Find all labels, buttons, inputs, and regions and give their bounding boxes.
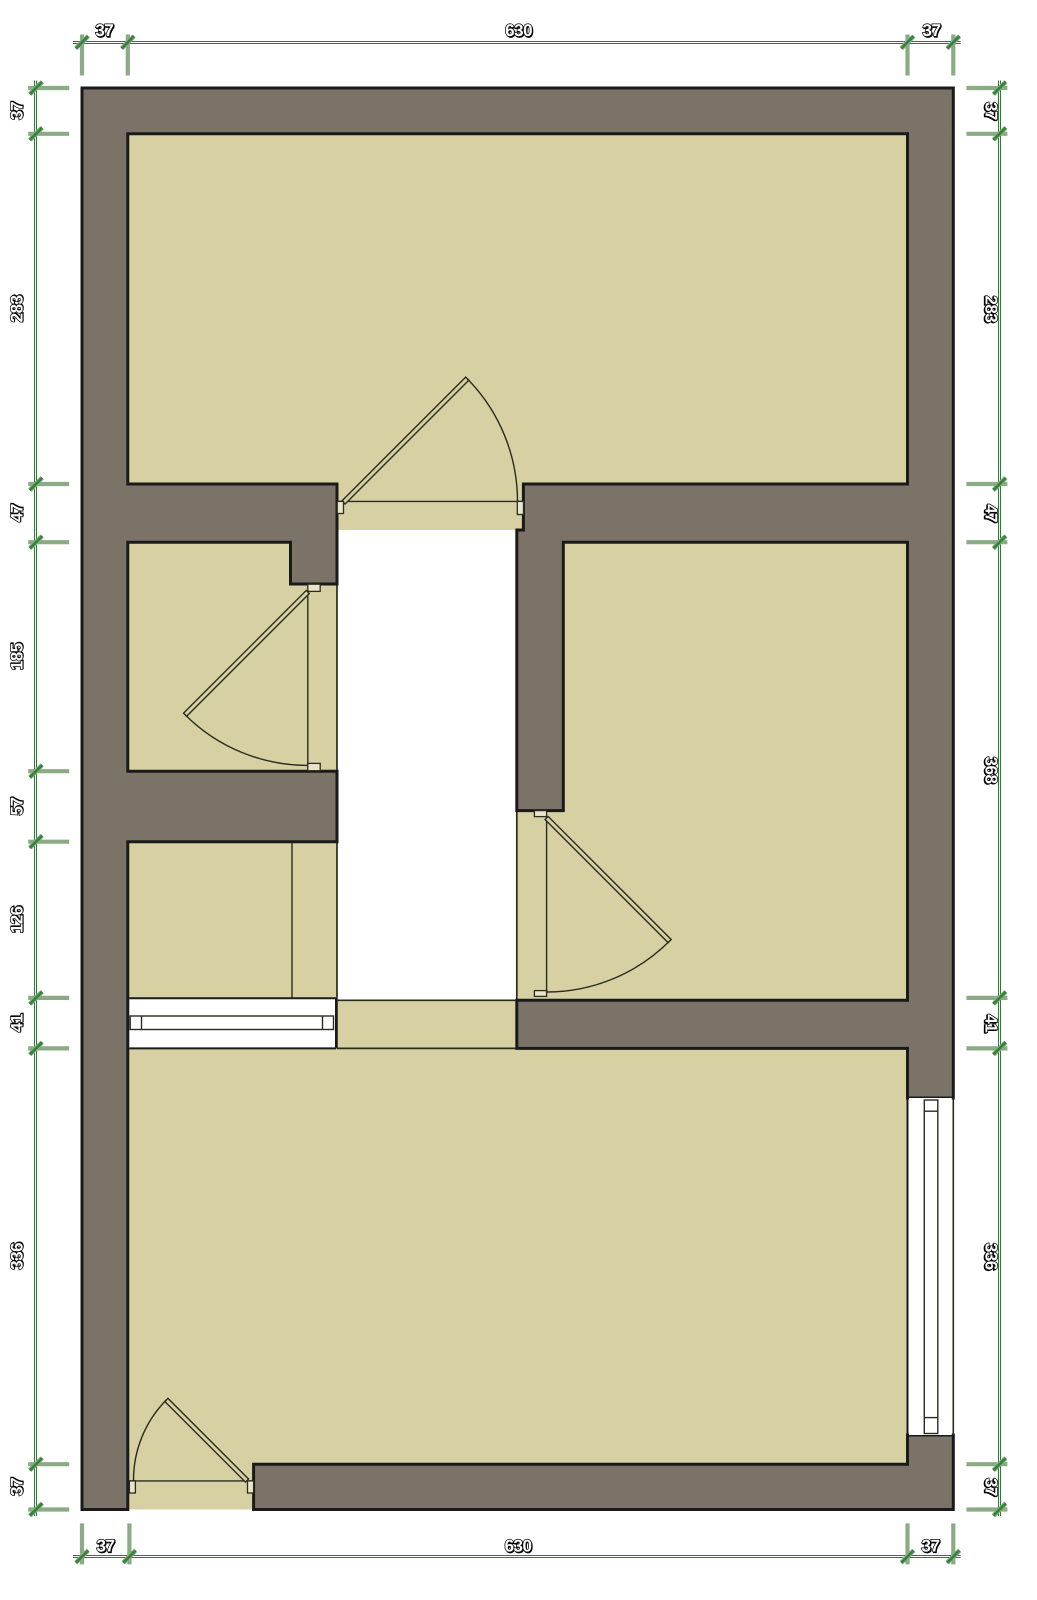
svg-text:630: 630 (505, 1537, 532, 1556)
svg-text:37: 37 (981, 1478, 1000, 1496)
svg-text:37: 37 (97, 1537, 115, 1556)
svg-text:37: 37 (95, 21, 113, 40)
svg-text:283: 283 (7, 295, 26, 322)
svg-text:41: 41 (981, 1014, 1000, 1032)
svg-text:283: 283 (981, 295, 1000, 322)
svg-text:185: 185 (7, 643, 26, 670)
svg-text:336: 336 (981, 1243, 1000, 1270)
svg-text:336: 336 (7, 1243, 26, 1270)
svg-text:368: 368 (981, 757, 1000, 784)
svg-text:37: 37 (981, 102, 1000, 120)
svg-text:126: 126 (7, 906, 26, 933)
svg-text:37: 37 (923, 21, 941, 40)
svg-text:37: 37 (922, 1537, 940, 1556)
svg-text:41: 41 (7, 1014, 26, 1032)
svg-text:37: 37 (7, 1478, 26, 1496)
svg-text:47: 47 (981, 504, 1000, 522)
svg-text:57: 57 (7, 798, 26, 816)
svg-text:630: 630 (505, 21, 532, 40)
svg-text:47: 47 (7, 504, 26, 522)
svg-text:37: 37 (7, 102, 26, 120)
